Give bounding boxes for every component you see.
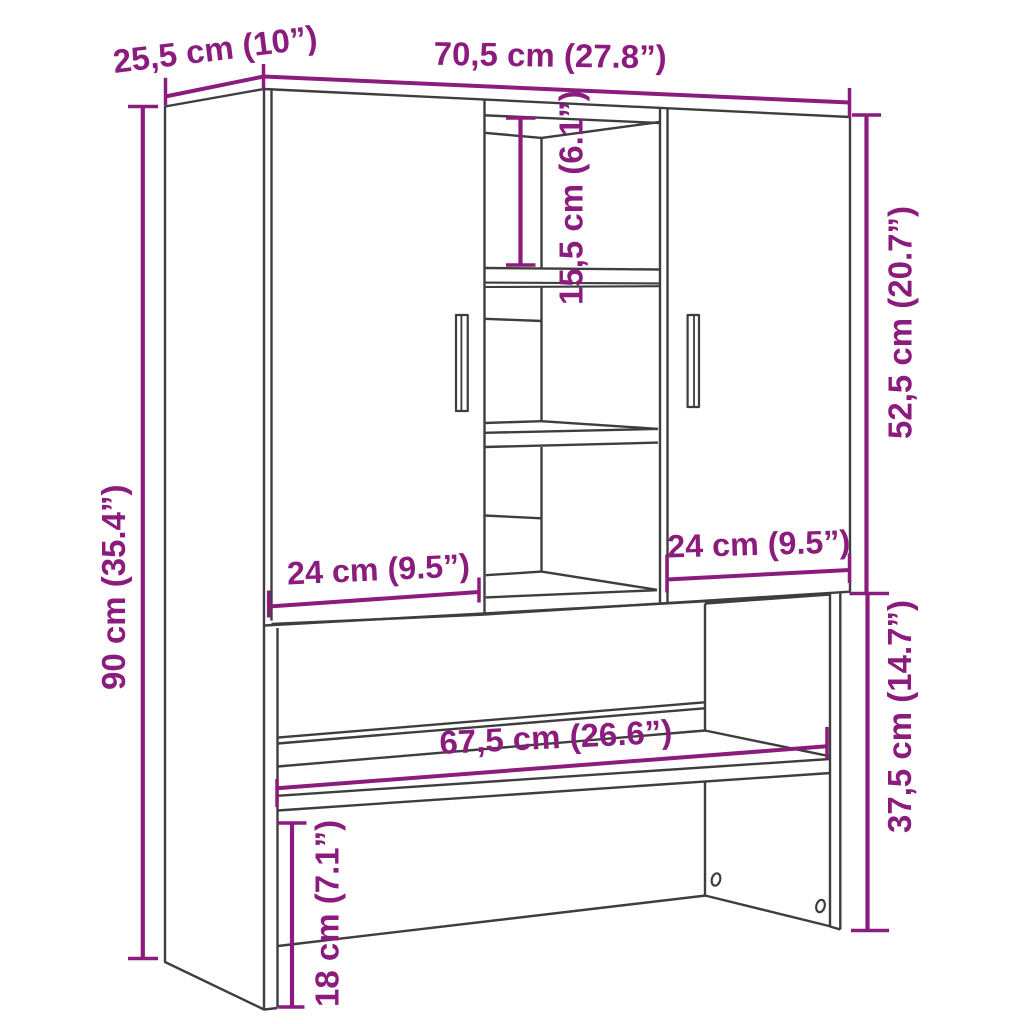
svg-text:24 cm (9.5”): 24 cm (9.5”) <box>667 523 851 564</box>
svg-text:52,5 cm (20.7”): 52,5 cm (20.7”) <box>882 206 919 439</box>
svg-text:90 cm (35.4”): 90 cm (35.4”) <box>95 485 132 690</box>
svg-text:70,5 cm (27.8”): 70,5 cm (27.8”) <box>433 35 667 76</box>
svg-text:15,5 cm (6.1”): 15,5 cm (6.1”) <box>553 90 590 305</box>
svg-text:37,5 cm (14.7”): 37,5 cm (14.7”) <box>881 600 918 833</box>
svg-text:18 cm (7.1”): 18 cm (7.1”) <box>309 820 346 1007</box>
